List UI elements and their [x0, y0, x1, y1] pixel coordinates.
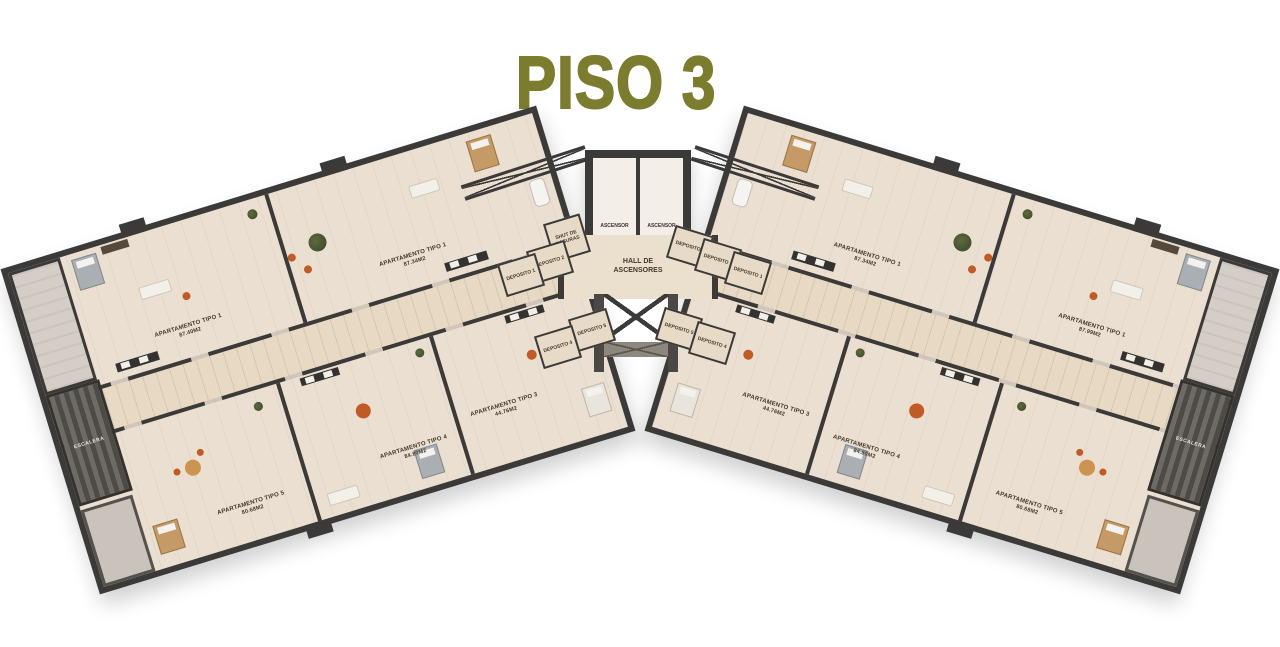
wall-segment	[694, 285, 1219, 449]
furniture-bed	[71, 253, 105, 291]
wall-stub	[932, 156, 961, 177]
furniture-plant	[951, 231, 973, 253]
wall-segment	[973, 194, 1016, 323]
elevator-label: ASCENSOR	[593, 223, 636, 229]
stair-label: ESCALERA	[1175, 435, 1207, 450]
furniture-sofa	[1110, 279, 1144, 301]
hall-label: HALL DE ASCENSORES	[598, 258, 678, 276]
furniture-table	[354, 402, 373, 421]
furniture-table	[1077, 458, 1097, 478]
furniture-chair	[196, 448, 205, 457]
furniture-bed	[466, 134, 500, 172]
furniture-bathtub	[731, 177, 754, 208]
apartment-label-tipo3: APARTAMENTO TIPO 3 44.76M2	[461, 389, 549, 428]
furniture-sofa	[408, 178, 440, 199]
furniture-chair	[303, 264, 313, 274]
furniture-bed	[782, 135, 816, 173]
furniture-plant	[253, 401, 264, 412]
furniture-plant	[855, 347, 866, 358]
furniture-plant	[414, 347, 425, 358]
furniture-bed	[581, 382, 613, 418]
furniture-chair	[1075, 448, 1084, 457]
elevator-shaft: ASCENSOR	[593, 158, 636, 236]
furniture-chair	[525, 348, 537, 360]
furniture-table	[907, 402, 926, 421]
wall-segment	[61, 285, 586, 449]
furniture-chair	[1099, 468, 1108, 477]
wall-stub	[320, 156, 349, 177]
furniture-bed	[669, 382, 701, 418]
furniture-plant	[1016, 401, 1027, 412]
floor-plan-page: PISO 3 ESCALERA APARTAMENTO TIPO 1 87.40…	[0, 0, 1280, 647]
apartment-label-tipo3: APARTAMENTO TIPO 3 44.76M2	[731, 389, 819, 428]
wall-stub	[946, 518, 975, 539]
wall-stub	[119, 217, 148, 238]
furniture-bed	[152, 519, 186, 555]
apartment-label-tipo1-outer: APARTAMENTO TIPO 1 87.40M2	[144, 310, 234, 349]
furniture-bed	[1177, 253, 1211, 291]
furniture-closet	[1150, 239, 1179, 255]
furniture-sofa	[138, 279, 172, 301]
furniture-plant	[306, 231, 328, 253]
wall-segment	[264, 194, 307, 323]
furniture-closet	[100, 239, 129, 255]
balcony	[1124, 495, 1199, 587]
apartment-label-tipo1-outer: APARTAMENTO TIPO 1 87.99M2	[1046, 310, 1136, 349]
stair-label: ESCALERA	[73, 435, 105, 450]
apartment-label-tipo1-inner: APARTAMENTO TIPO 1 87.34M2	[819, 238, 914, 279]
balcony	[81, 495, 156, 587]
apartment-label-tipo4: APARTAMENTO TIPO 4 84.80M2	[370, 431, 460, 470]
furniture-chair	[173, 468, 182, 477]
furniture-table	[183, 458, 203, 478]
elevator-block: ASCENSOR ASCENSOR	[585, 150, 691, 236]
apartment-label-tipo5: APARTAMENTO TIPO 5 80.68M2	[983, 487, 1073, 526]
wall-stub	[1132, 217, 1161, 238]
furniture-chair	[742, 348, 754, 360]
furniture-sofa	[326, 484, 360, 506]
furniture-bed	[1096, 519, 1130, 555]
page-title: PISO 3	[111, 46, 1121, 120]
furniture-bathtub	[528, 177, 551, 208]
furniture-chair	[181, 291, 191, 301]
beam	[604, 342, 668, 357]
apartment-label-tipo4: APARTAMENTO TIPO 4 84.80M2	[820, 431, 910, 470]
right-wing: ESCALERA APARTAMENTO TIPO 1 87.99M2 APAR…	[645, 106, 1280, 595]
furniture-chair	[967, 264, 977, 274]
furniture-sofa	[921, 485, 955, 507]
apartment-label-tipo1-inner: APARTAMENTO TIPO 1 87.34M2	[367, 238, 462, 279]
furniture-sofa	[841, 178, 873, 199]
furniture-plant	[246, 208, 258, 220]
furniture-chair	[1089, 291, 1099, 301]
wall-stub	[305, 518, 334, 539]
apartment-label-tipo5: APARTAMENTO TIPO 5 80.68M2	[207, 487, 297, 526]
furniture-plant	[1021, 208, 1033, 220]
